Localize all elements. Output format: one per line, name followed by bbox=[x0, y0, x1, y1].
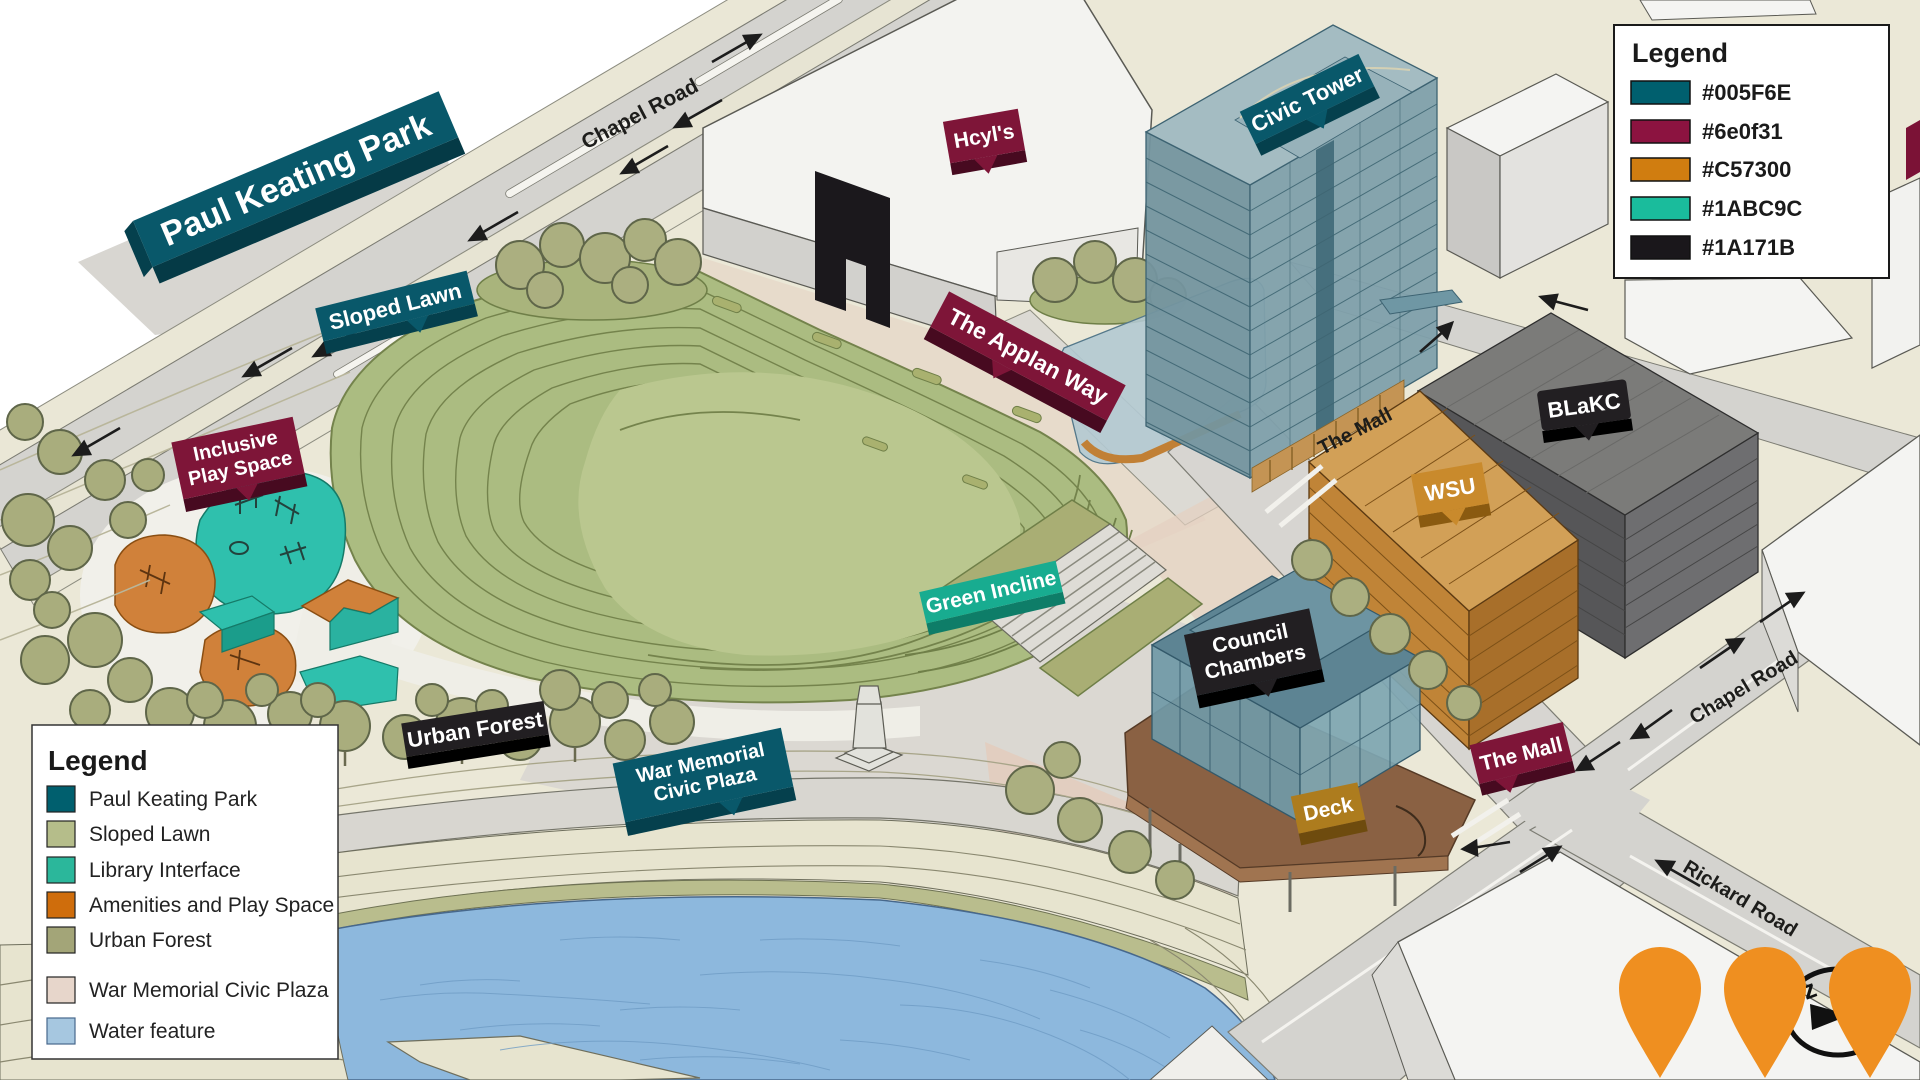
svg-text:Urban Forest: Urban Forest bbox=[89, 929, 212, 952]
svg-text:Amenities and Play Space: Amenities and Play Space bbox=[89, 894, 334, 917]
svg-text:#005F6E: #005F6E bbox=[1702, 80, 1791, 105]
svg-text:#6e0f31: #6e0f31 bbox=[1702, 119, 1783, 144]
svg-text:Library Interface: Library Interface bbox=[89, 859, 241, 882]
svg-text:Legend: Legend bbox=[1632, 38, 1728, 68]
svg-text:#1ABC9C: #1ABC9C bbox=[1702, 196, 1802, 221]
svg-text:War Memorial Civic Plaza: War Memorial Civic Plaza bbox=[89, 979, 329, 1002]
svg-text:Legend: Legend bbox=[48, 745, 148, 776]
svg-text:Water feature: Water feature bbox=[89, 1020, 215, 1043]
svg-text:#1A171B: #1A171B bbox=[1702, 235, 1795, 260]
svg-text:Paul Keating Park: Paul Keating Park bbox=[89, 788, 258, 811]
svg-text:#C57300: #C57300 bbox=[1702, 157, 1791, 182]
svg-text:Sloped Lawn: Sloped Lawn bbox=[89, 823, 210, 846]
